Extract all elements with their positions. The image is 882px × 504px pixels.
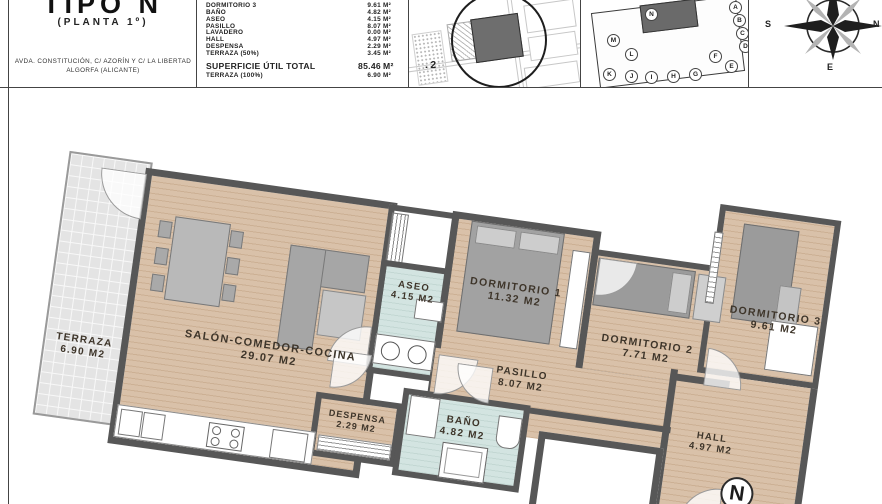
chair — [225, 257, 240, 276]
chair — [221, 284, 236, 303]
compass-rose: S N E — [749, 0, 882, 87]
chair — [154, 247, 169, 266]
unit-circle-m: M — [607, 34, 620, 47]
building-key-plan: NMLKJIHGFEABCD — [581, 0, 748, 87]
compass-east-label: E — [827, 62, 833, 72]
unit-circle-g: G — [689, 68, 702, 81]
unit-circle-i: I — [645, 71, 658, 84]
plan-floor-subtitle: (PLANTA 1º) — [10, 17, 196, 28]
unit-circle-b: B — [733, 14, 746, 27]
cooktop — [206, 422, 245, 452]
address-line-2: ALGORFA (ALICANTE) — [10, 67, 196, 74]
unit-circle-a: A — [729, 1, 742, 14]
plot-number-label: . 2 — [425, 60, 436, 71]
site-location-map: . 2 — [409, 0, 580, 87]
table-total-row-2: TERRAZA (100%) 6.90 M² — [206, 72, 398, 80]
header-divider — [0, 87, 882, 88]
unit-circle-n: N — [645, 8, 658, 21]
unit-circle-k: K — [603, 68, 616, 81]
stippled-plot — [412, 30, 449, 86]
unit-circle-c: C — [736, 27, 748, 40]
shower — [438, 442, 489, 484]
location-circle — [451, 0, 547, 87]
fridge — [118, 409, 143, 438]
table-row: TERRAZA (50%) 3.45 M² — [206, 51, 398, 58]
compass-south-label: S — [765, 19, 771, 29]
table-total-row: SUPERFICIE ÚTIL TOTAL 85.46 M² — [206, 61, 398, 72]
chair — [229, 230, 244, 249]
chair — [157, 220, 172, 239]
chair — [150, 274, 165, 293]
plan-sheet: TIPO N (PLANTA 1º) AVDA. CONSTITUCIÓN, C… — [0, 0, 882, 504]
unit-circle-l: L — [625, 48, 638, 61]
address-line-1: AVDA. CONSTITUCIÓN, C/ AZORÍN Y C/ LA LI… — [10, 58, 196, 65]
unit-circle-j: J — [625, 70, 638, 83]
compass-icon — [749, 0, 882, 87]
unit-circle-d: D — [739, 40, 748, 53]
title-block: TIPO N (PLANTA 1º) AVDA. CONSTITUCIÓN, C… — [10, 0, 196, 87]
dining-table — [164, 216, 231, 307]
unit-circle-e: E — [725, 60, 738, 73]
freezer — [140, 412, 165, 441]
header-column-divider — [196, 0, 197, 87]
oven — [269, 429, 309, 463]
unit-circle-h: H — [667, 70, 680, 83]
compass-north-label: N — [873, 19, 880, 29]
sheet-border — [8, 0, 9, 504]
unit-circle-f: F — [709, 50, 722, 63]
areas-table: DORMITORIO 2 DORMITORIO 3 9.61 M² BAÑO 4… — [206, 0, 398, 80]
